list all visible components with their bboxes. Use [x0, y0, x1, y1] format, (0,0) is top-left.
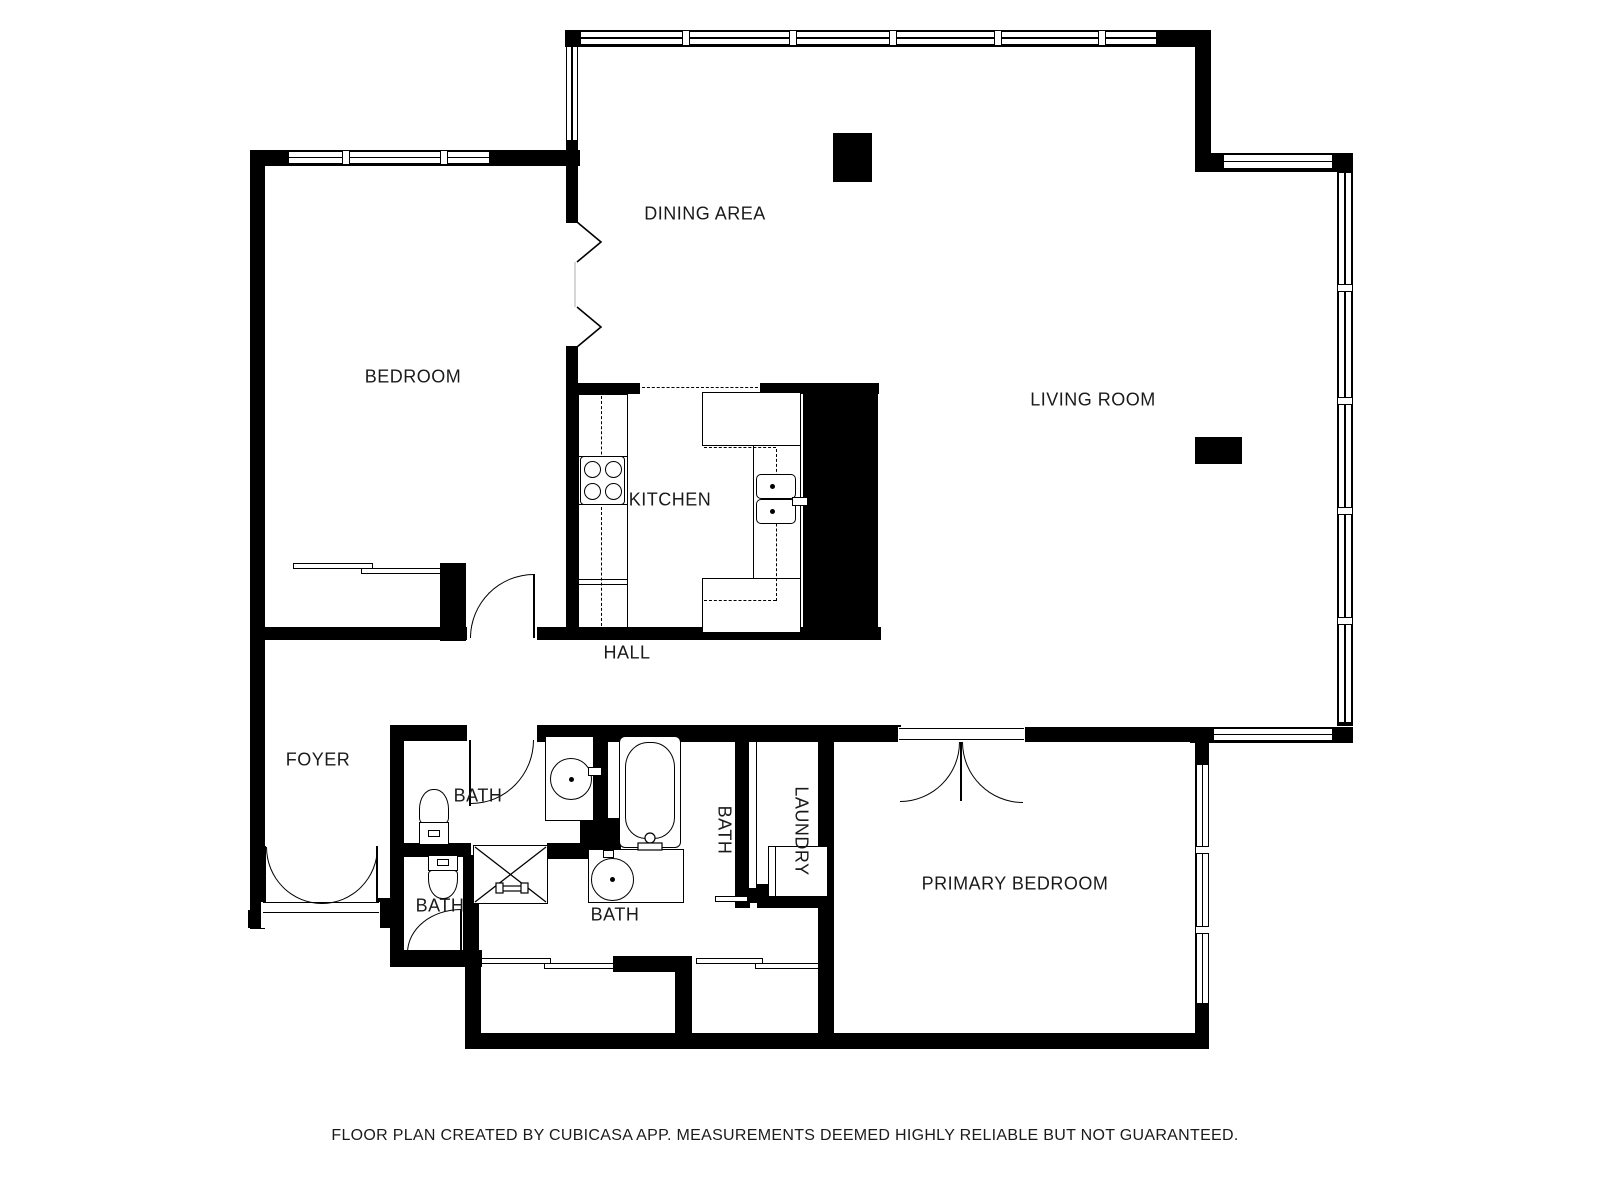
window [1213, 728, 1333, 741]
room-label-primary-bedroom: PRIMARY BEDROOM [922, 874, 1109, 895]
shower [473, 845, 548, 904]
window [1223, 154, 1333, 169]
wall [675, 956, 692, 1048]
entry-door-leaf [376, 846, 378, 903]
window-mullion [682, 31, 690, 45]
counter-seam [579, 584, 627, 585]
drain [770, 509, 775, 514]
room-label-foyer: FOYER [286, 750, 351, 771]
toilet-flush-button [428, 830, 440, 837]
wall [465, 1033, 1209, 1049]
kitchen-sink [756, 499, 796, 524]
sliding-door [715, 896, 748, 902]
faucet [588, 767, 602, 776]
stove-burner [605, 461, 622, 478]
room-label-bath-vertical: BATH [714, 806, 735, 855]
counter-seam [579, 579, 627, 580]
room-label-bath-middle: BATH [591, 905, 640, 926]
floor-plan: DINING AREA BEDROOM LIVING ROOM KITCHEN … [0, 0, 1600, 1200]
room-label-bath-top: BATH [454, 786, 503, 807]
toilet-flush-button [437, 859, 449, 866]
kitchen-counter [702, 578, 801, 633]
room-label-laundry: LAUNDRY [791, 786, 812, 875]
counter-dashed-line [704, 447, 776, 448]
drain [610, 877, 615, 882]
window-mullion [1098, 31, 1106, 45]
wall [440, 563, 466, 641]
french-door-arc [962, 742, 1023, 803]
stove-burner [584, 483, 601, 500]
window-mullion [440, 151, 448, 164]
window-mullion [1338, 617, 1352, 625]
pocket-door [748, 742, 757, 888]
bathtub-basin [625, 742, 675, 839]
kitchen-counter [702, 392, 801, 446]
window-mullion [1338, 397, 1352, 405]
disclaimer-text: FLOOR PLAN CREATED BY CUBICASA APP. MEAS… [331, 1127, 1238, 1145]
faucet [603, 850, 614, 858]
window-mullion [1196, 846, 1209, 854]
window-mullion [1338, 284, 1352, 292]
wall [378, 898, 394, 928]
sliding-closet-door [361, 568, 441, 574]
kitchen-sink [756, 474, 796, 499]
room-label-hall: HALL [603, 643, 650, 664]
wall [390, 725, 471, 741]
counter-dashed-line [601, 396, 602, 626]
wall [1195, 45, 1211, 155]
stove-burner [605, 483, 622, 500]
room-label-living-room: LIVING ROOM [1030, 390, 1156, 411]
sliding-closet-door [481, 958, 551, 964]
utility-chase [803, 385, 878, 633]
wall [566, 346, 578, 630]
french-door-leaf [960, 742, 962, 801]
entry-door-leaf [264, 846, 266, 903]
toilet [419, 789, 449, 826]
wall [578, 383, 641, 394]
room-label-bath-lower-left: BATH [416, 896, 465, 917]
sliding-closet-door [696, 958, 763, 964]
drain [569, 777, 574, 782]
window-mullion [789, 31, 797, 45]
window-mullion [994, 31, 1002, 45]
window [566, 46, 578, 141]
wall [250, 627, 471, 640]
entry-door-arc [322, 847, 378, 904]
french-door-sill [899, 728, 1024, 740]
counter-dashed-line [704, 600, 776, 601]
drain [770, 484, 775, 489]
washer-door [768, 846, 776, 897]
window [288, 151, 490, 164]
counter-dashed-line [776, 449, 777, 601]
window [1196, 764, 1209, 1004]
window [1338, 172, 1352, 723]
french-door-arc [900, 742, 960, 802]
wall [566, 140, 578, 223]
room-label-dining-area: DINING AREA [644, 204, 766, 225]
window-mullion [889, 31, 897, 45]
stove-burner [584, 461, 601, 478]
wall-opening-chevron [577, 222, 601, 262]
window [580, 31, 1157, 45]
room-label-kitchen: KITCHEN [629, 490, 712, 511]
wall [1023, 727, 1195, 742]
sliding-closet-door [544, 963, 614, 969]
wall [613, 956, 676, 972]
column-block [1195, 437, 1242, 464]
wall-opening-chevron [577, 307, 601, 347]
wall [465, 956, 481, 1036]
entry-door-arc [266, 847, 322, 904]
door-arc [470, 574, 534, 638]
room-label-bedroom: BEDROOM [365, 367, 462, 388]
window-mullion [1196, 926, 1209, 934]
door-leaf [533, 574, 535, 638]
faucet [792, 497, 808, 506]
wall [818, 956, 834, 1048]
door-opening [467, 725, 535, 741]
kitchen-counter [578, 394, 628, 628]
upper-cabinet-dashed-line [642, 387, 758, 388]
wall [250, 150, 265, 929]
sliding-closet-door [755, 963, 819, 969]
window-mullion [342, 151, 350, 164]
window-mullion [1338, 507, 1352, 515]
column-block [833, 133, 872, 182]
